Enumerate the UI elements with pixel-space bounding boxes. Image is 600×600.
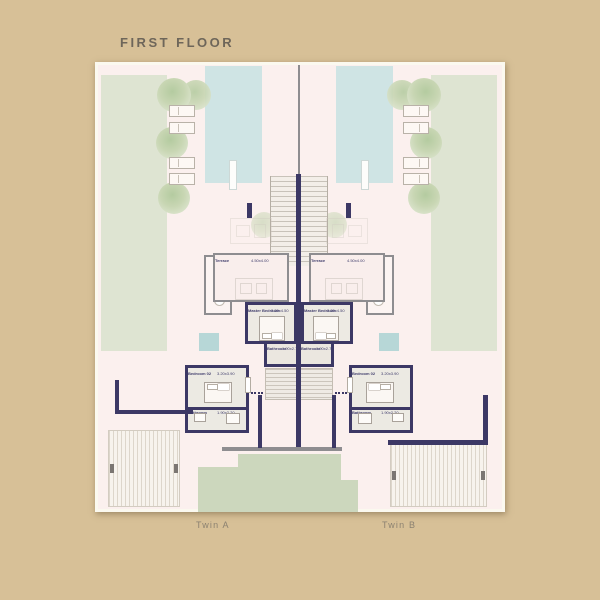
pool-ladder-icon: [230, 161, 236, 189]
door-threshold: [251, 392, 263, 394]
party-wall-top: [298, 65, 300, 176]
floor-plan-page: FIRST FLOOR: [0, 0, 600, 600]
boundary-wall: [483, 395, 488, 445]
bathroom-fixture-icon: [392, 413, 404, 422]
furniture-sketch: [230, 218, 272, 244]
sun-lounger-icon: [169, 173, 195, 185]
terrace-room: Terrace 4.50x4.00: [213, 253, 289, 302]
furniture-sketch: [325, 278, 363, 300]
furniture-sketch: [326, 218, 368, 244]
master-bedroom-room: Master Bedroom 3.20x4.50: [301, 302, 353, 344]
water-feature: [199, 333, 219, 351]
pergola-handle: [481, 471, 485, 480]
pool-ladder-icon: [362, 161, 368, 189]
window: [348, 378, 352, 392]
bed-icon: [366, 382, 394, 403]
sun-lounger-icon: [169, 105, 195, 117]
bed-icon: [259, 316, 285, 341]
sun-lounger-icon: [169, 157, 195, 169]
sun-lounger-icon: [403, 105, 429, 117]
lawn-strip: [101, 75, 167, 351]
corridor-wall: [258, 395, 262, 448]
bed-icon: [204, 382, 232, 403]
furniture-sketch: [235, 278, 273, 300]
party-wall: [296, 174, 301, 450]
garden-patch: [198, 467, 238, 512]
sun-lounger-icon: [403, 122, 429, 134]
door-threshold: [335, 392, 347, 394]
retaining-wall: [222, 447, 342, 451]
tree-icon: [158, 182, 190, 214]
pergola-handle: [174, 464, 178, 473]
bedroom-02-room: Bedroom 02 3.20x3.90 Bathroom 1.90x2.20: [185, 365, 249, 433]
twin-a-label: Twin A: [196, 520, 230, 530]
pergola: [390, 443, 487, 507]
wall-stub: [346, 203, 351, 218]
bathroom-fixture-icon: [226, 413, 240, 424]
master-bedroom-room: Master Bedroom 3.20x4.50: [245, 302, 297, 344]
water-feature: [379, 333, 399, 351]
bathroom-fixture-icon: [194, 413, 206, 422]
sun-lounger-icon: [169, 122, 195, 134]
pergola: [108, 430, 180, 507]
window: [246, 378, 250, 392]
page-title: FIRST FLOOR: [120, 35, 234, 50]
bathroom-fixture-icon: [358, 413, 372, 424]
pergola-handle: [110, 464, 114, 473]
sun-lounger-icon: [403, 173, 429, 185]
boundary-wall: [388, 440, 488, 445]
garden-patch: [238, 454, 341, 512]
bathroom-room: Bathroom 1.90x2.75: [298, 341, 334, 367]
bathroom-room: Bathroom 1.90x2.75: [264, 341, 300, 367]
bed-icon: [313, 316, 339, 341]
boundary-wall: [115, 410, 193, 414]
pergola-handle: [392, 471, 396, 480]
terrace-room: Terrace 4.50x4.00: [309, 253, 385, 302]
boundary-wall: [115, 380, 119, 414]
wall-stub: [247, 203, 252, 218]
garden-patch: [341, 480, 358, 512]
lawn-strip: [431, 75, 497, 351]
indoor-stairs: [298, 368, 333, 400]
corridor-wall: [332, 395, 336, 448]
sun-lounger-icon: [403, 157, 429, 169]
bedroom-02-room: Bedroom 02 3.20x3.90 Bathroom 1.90x2.20: [349, 365, 413, 433]
twin-b-label: Twin B: [382, 520, 416, 530]
floor-plan: Terrace 4.50x4.00 Master Bedroom 3.20x4.…: [95, 62, 505, 512]
tree-icon: [408, 182, 440, 214]
indoor-stairs: [265, 368, 300, 400]
